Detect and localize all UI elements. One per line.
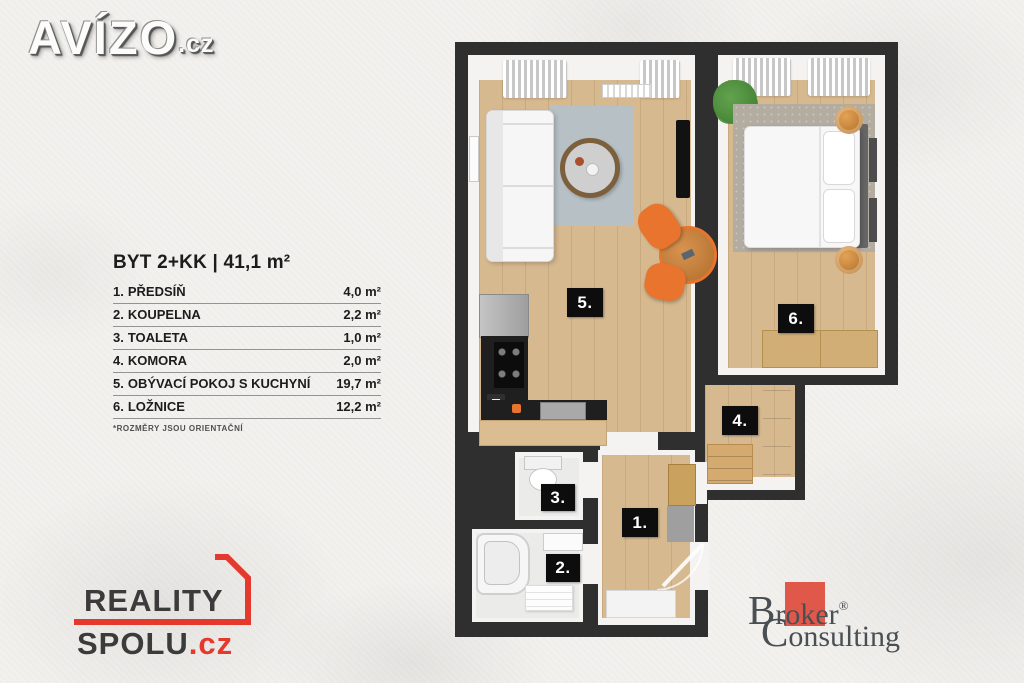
bedroom-bench [762, 330, 878, 368]
room-label-hall: 1. [622, 508, 658, 537]
wardrobe [763, 390, 791, 476]
bench-seam [820, 331, 821, 367]
reality-spolu-tld: .cz [189, 626, 233, 661]
door-toilet [583, 462, 600, 498]
stove [494, 342, 524, 388]
door-bathroom [583, 544, 600, 584]
sofa-seam [503, 185, 553, 187]
room-label-bathroom: 2. [546, 554, 580, 582]
sofa-backrest [487, 111, 503, 261]
pillow [823, 131, 855, 185]
door-living-hallway [600, 432, 658, 450]
curtain [503, 60, 567, 98]
shower [476, 533, 530, 595]
wall-panel [869, 198, 877, 242]
fridge [479, 294, 529, 338]
table-decor [586, 163, 599, 176]
room-area: 12,2 m² [336, 399, 381, 414]
consulting-word: Consulting [761, 615, 900, 654]
sofa-armrest [503, 247, 553, 249]
shower-glass [484, 541, 520, 585]
nightstand [835, 106, 863, 134]
bath-mat [525, 585, 573, 611]
room-area: 4,0 m² [343, 284, 381, 299]
tv [676, 120, 690, 198]
pillow [823, 189, 855, 243]
entry-door-swing [653, 542, 709, 594]
kitchen-item [512, 404, 521, 413]
kitchen-bar [479, 420, 607, 446]
room-label-living: 5. [567, 288, 603, 317]
hall-cabinet [668, 464, 696, 506]
radiator [602, 84, 652, 98]
wall-panel [869, 138, 877, 182]
sofa-armrest [503, 123, 553, 125]
table-decor [681, 249, 695, 260]
drawer-unit [707, 444, 753, 484]
curtain [808, 58, 870, 96]
reality-spolu-roofline [0, 0, 300, 683]
reality-spolu-line1: REALITY [84, 583, 224, 619]
duvet-seam [819, 127, 821, 247]
screenshot-canvas: AVÍZO.cz BYT 2+KK | 41,1 m² 1.PŘEDSÍŇ 4,… [0, 0, 1024, 683]
bed [744, 126, 860, 248]
nightstand [835, 246, 863, 274]
room-label-toilet: 3. [541, 484, 575, 511]
bathroom-sink [543, 533, 583, 551]
room-area: 2,2 m² [343, 307, 381, 322]
reality-spolu-line2: SPOLU.cz [77, 626, 233, 662]
sofa [486, 110, 554, 262]
registered-mark: ® [839, 598, 849, 613]
kitchen-sink [540, 402, 586, 420]
room-label-bedroom: 6. [778, 304, 814, 333]
room-area: 2,0 m² [343, 353, 381, 368]
table-decor [575, 157, 584, 166]
room-label-storage: 4. [722, 406, 758, 435]
coffee-table [560, 138, 620, 198]
floor-plan: 5. 6. 4. 1. [455, 42, 915, 643]
hall-mat [667, 506, 694, 542]
room-area: 19,7 m² [336, 376, 381, 391]
entry-mat [606, 590, 676, 618]
room-area: 1,0 m² [343, 330, 381, 345]
wall-picture [469, 136, 479, 182]
